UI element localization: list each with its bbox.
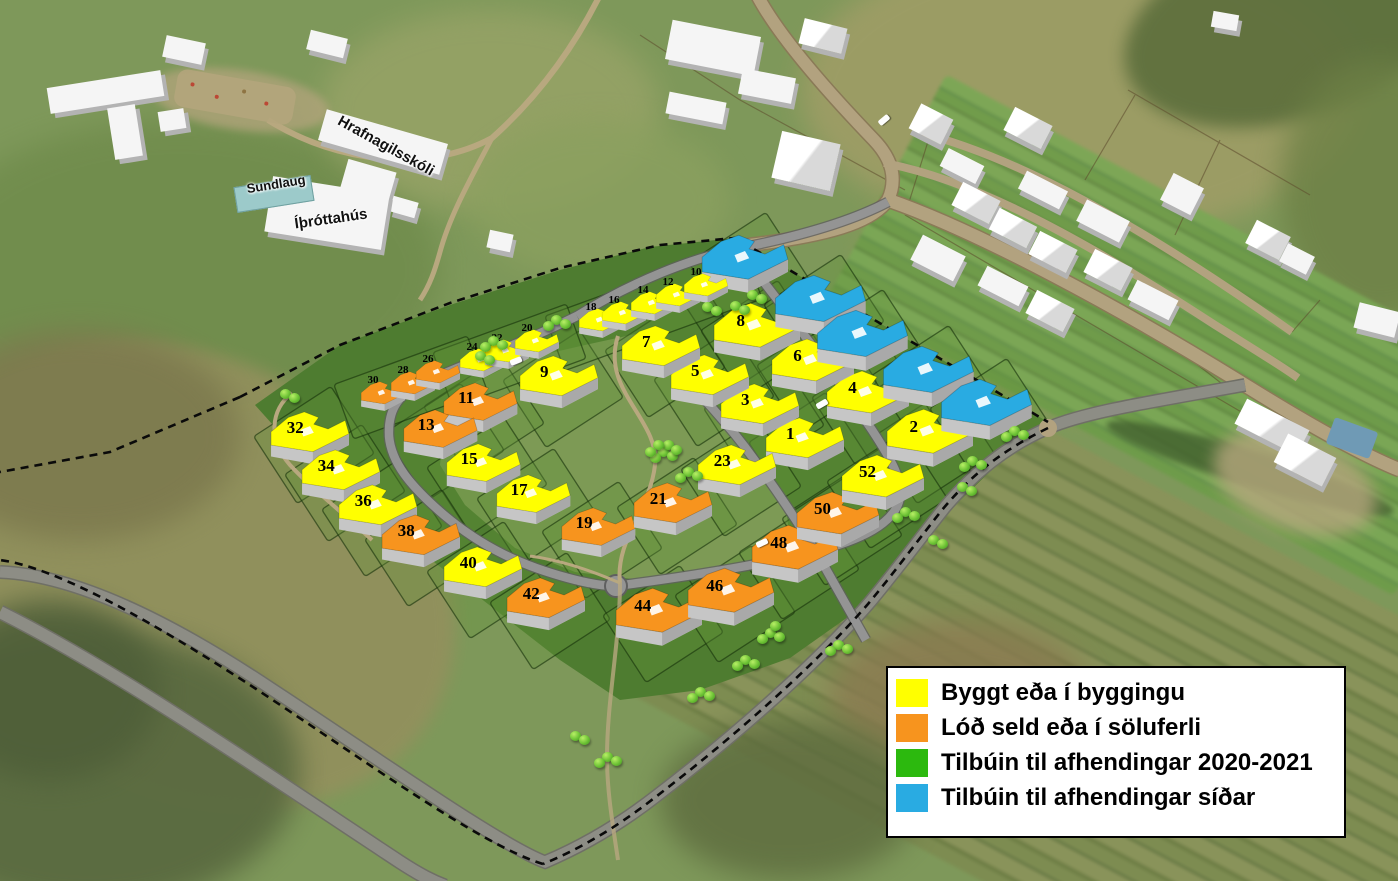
- white-building: [1160, 173, 1204, 215]
- white-building: [1279, 243, 1315, 274]
- rowhouse-number: 16: [609, 294, 620, 306]
- house-number: 40: [460, 553, 477, 573]
- white-building: [665, 92, 726, 125]
- rowhouse-number: 14: [638, 284, 649, 296]
- legend-items: Byggt eða í bygginguLóð seld eða í söluf…: [896, 675, 1344, 815]
- house-number: 7: [642, 332, 651, 352]
- house-number: 44: [634, 596, 651, 616]
- white-building: [989, 208, 1037, 248]
- white-building: [162, 35, 206, 65]
- legend-label: Tilbúin til afhendingar síðar: [941, 786, 1255, 810]
- house-number: 23: [714, 451, 731, 471]
- farm-pond: [1326, 417, 1379, 459]
- white-building: [799, 18, 848, 54]
- playground: [173, 68, 298, 126]
- legend-label: Tilbúin til afhendingar 2020-2021: [941, 751, 1313, 775]
- white-building: [486, 230, 513, 253]
- legend-item: Tilbúin til afhendingar 2020-2021: [896, 745, 1344, 780]
- white-building: [306, 30, 348, 59]
- white-building: [107, 104, 143, 160]
- legend-item: Lóð seld eða í söluferli: [896, 710, 1344, 745]
- white-building: [389, 196, 418, 219]
- car: [877, 114, 890, 126]
- white-building: [1076, 199, 1130, 242]
- aerial-site-plan: 1 2 3 4 5 6 7 8 9: [0, 0, 1398, 881]
- white-building: [1083, 249, 1132, 291]
- white-building: [940, 148, 985, 184]
- legend-item: Byggt eða í byggingu: [896, 675, 1344, 710]
- white-building: [909, 103, 954, 144]
- house-number: 15: [461, 449, 478, 469]
- legend-swatch-later: [896, 784, 928, 812]
- house-number: 19: [576, 513, 593, 533]
- white-building: [1353, 302, 1398, 337]
- house-number: 42: [523, 584, 540, 604]
- rowhouse-number: 24: [467, 341, 478, 353]
- house-number: 9: [540, 362, 549, 382]
- white-building: [1003, 107, 1052, 149]
- rowhouse-number: 30: [368, 374, 379, 386]
- house-number: 36: [355, 491, 372, 511]
- white-building: [1128, 280, 1179, 320]
- white-building: [158, 108, 187, 132]
- house-52: 52: [840, 452, 926, 512]
- house-9: 9: [518, 353, 600, 410]
- white-building: [771, 131, 840, 191]
- legend-swatch-built: [896, 679, 928, 707]
- legend-swatch-sold: [896, 714, 928, 742]
- rowhouse-number: 20: [522, 322, 533, 334]
- house-number: 38: [398, 521, 415, 541]
- rowhouse-number: 26: [423, 353, 434, 365]
- white-building: [910, 235, 965, 282]
- house-number: 34: [318, 456, 335, 476]
- house-number: 11: [458, 388, 474, 408]
- legend: Byggt eða í bygginguLóð seld eða í söluf…: [886, 666, 1346, 838]
- house-42: 42: [505, 575, 587, 632]
- legend-label: Byggt eða í byggingu: [941, 681, 1185, 705]
- rowhouse-number: 12: [663, 276, 674, 288]
- white-building: [738, 68, 796, 104]
- house-number: 32: [287, 418, 304, 438]
- white-building: [46, 70, 164, 114]
- white-building: [665, 20, 761, 76]
- white-building: [1028, 231, 1077, 273]
- house-number: 17: [511, 480, 528, 500]
- white-building: [1025, 290, 1074, 332]
- house-19: 19: [560, 505, 637, 559]
- house-number: 46: [706, 576, 723, 596]
- legend-item: Tilbúin til afhendingar síðar: [896, 780, 1344, 815]
- house-23: 23: [696, 442, 778, 499]
- legend-swatch-ready_2020_2021: [896, 749, 928, 777]
- house-number: 13: [418, 415, 435, 435]
- rowhouse-number: 28: [398, 364, 409, 376]
- house-number: 52: [859, 462, 876, 482]
- white-building: [1018, 171, 1068, 210]
- white-building: [978, 266, 1029, 306]
- house-number: 48: [770, 533, 787, 553]
- rowhouse-number: 10: [691, 266, 702, 278]
- house-number: 21: [650, 489, 667, 509]
- white-building: [1211, 11, 1239, 31]
- house-number: 50: [814, 499, 831, 519]
- rowhouse-number: 18: [586, 301, 597, 313]
- legend-label: Lóð seld eða í söluferli: [941, 716, 1201, 740]
